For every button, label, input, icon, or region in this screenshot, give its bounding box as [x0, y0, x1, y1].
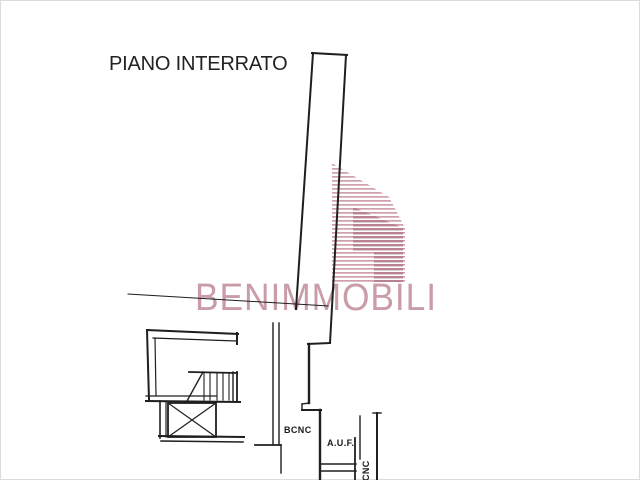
wall-segment [308, 343, 330, 344]
wall-segment [153, 338, 236, 341]
wall-segment [302, 403, 309, 404]
logo-house-shape [374, 252, 403, 282]
wall-segment [187, 372, 203, 401]
floor-plan-image: PIANO INTERRATO BENIMMOBILI BCNC A.U.F. … [0, 0, 640, 480]
wall-segment [147, 330, 149, 400]
wall-segment [147, 330, 238, 334]
wall-segment [128, 294, 328, 306]
floor-plan-drawing [0, 0, 640, 480]
floor-title: PIANO INTERRATO [109, 55, 288, 74]
wall-segment [312, 53, 347, 55]
wall-segment [161, 441, 243, 442]
watermark-house-logo [332, 163, 405, 283]
room-label-cnc-vertical: CNC [361, 460, 371, 480]
wall-segment [296, 53, 313, 309]
wall-segment [155, 338, 156, 395]
room-label-bcnc: BCNC [284, 425, 312, 435]
wall-segment [189, 372, 237, 373]
room-label-auf: A.U.F. [327, 438, 354, 448]
